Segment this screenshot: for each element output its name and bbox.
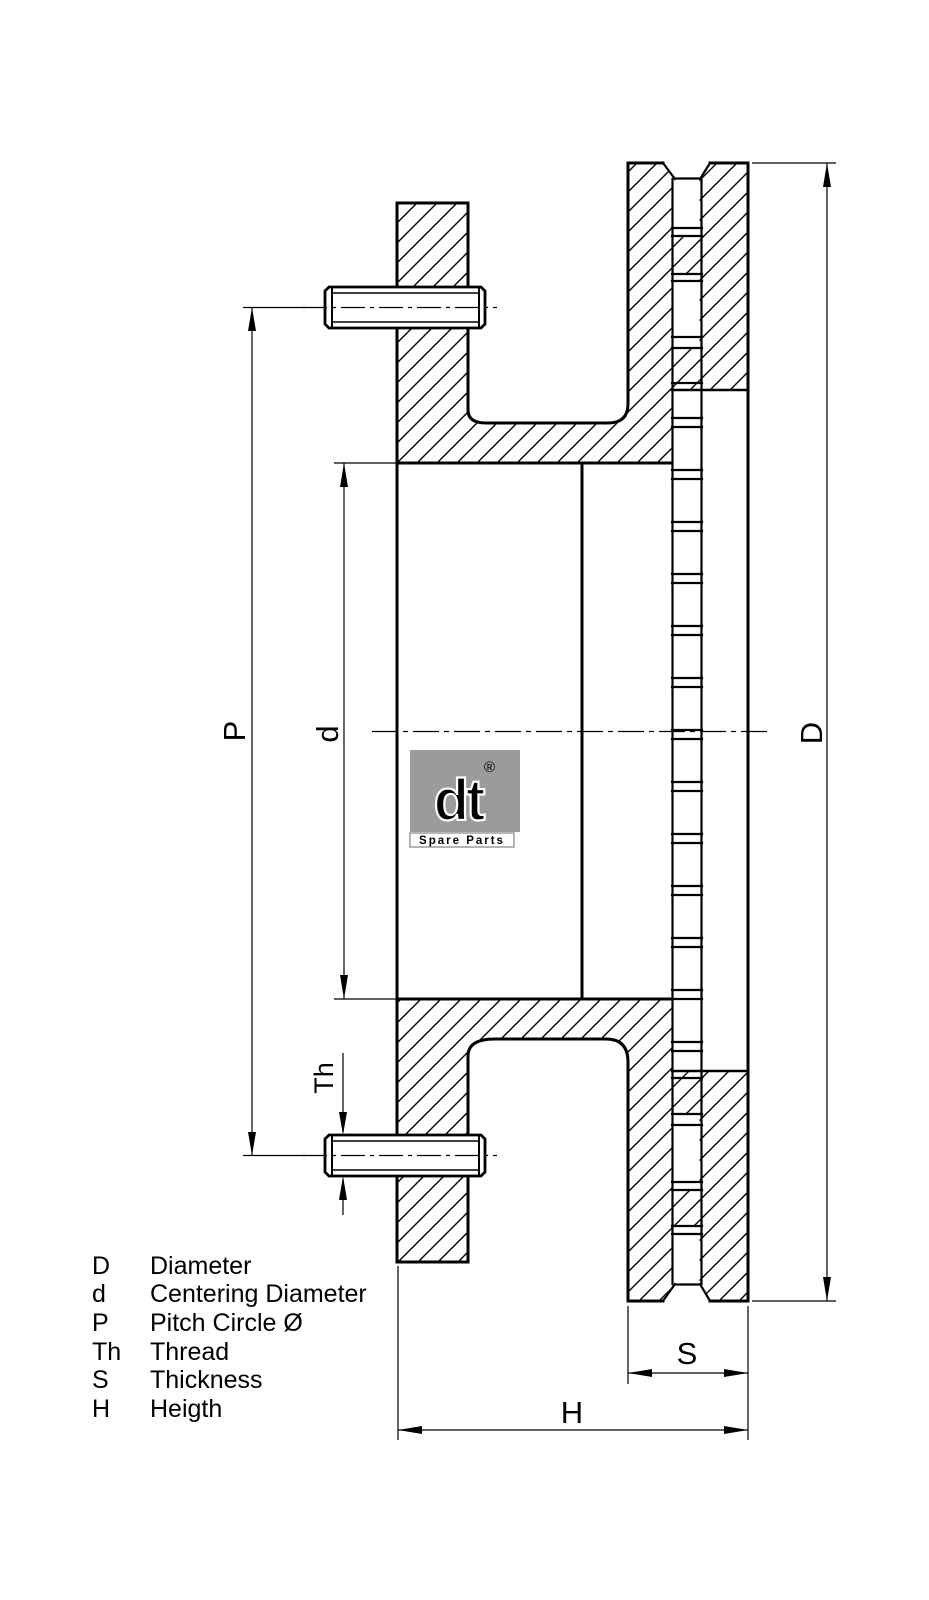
legend-value: Pitch Circle Ø [150,1309,303,1337]
centering-diameter-label: d [310,725,345,742]
legend-value: Thickness [150,1366,263,1394]
legend-value: Centering Diameter [150,1280,367,1308]
dt-logo-registered-mark: ® [484,759,495,776]
dt-logo-brand: dt [434,768,485,833]
dt-logo: dt ® Spare Parts [410,750,520,847]
dimension-pitch-circle: P [217,308,256,1156]
brake-disc-technical-drawing: P d D Th S H D Diameter d Centering Diam… [0,0,929,1600]
legend-key: P [92,1309,109,1337]
height-label: H [561,1395,583,1430]
legend-key: D [92,1252,110,1280]
legend-key: H [92,1395,110,1423]
pitch-circle-label: P [217,721,252,742]
legend: D Diameter d Centering Diameter P Pitch … [92,1252,367,1423]
legend-value: Diameter [150,1252,251,1280]
legend-key: d [92,1280,106,1308]
thread-label: Th [309,1062,339,1094]
spare-parts-label: Spare Parts [419,835,505,847]
legend-value: Heigth [150,1395,222,1423]
legend-value: Thread [150,1338,229,1366]
legend-key: Th [92,1338,121,1366]
legend-key: S [92,1366,109,1394]
thickness-label: S [677,1336,698,1371]
dimension-thickness: S [628,1306,748,1440]
diameter-label: D [794,722,829,744]
drawing-page: P d D Th S H D Diameter d Centering Diam… [0,0,929,1600]
